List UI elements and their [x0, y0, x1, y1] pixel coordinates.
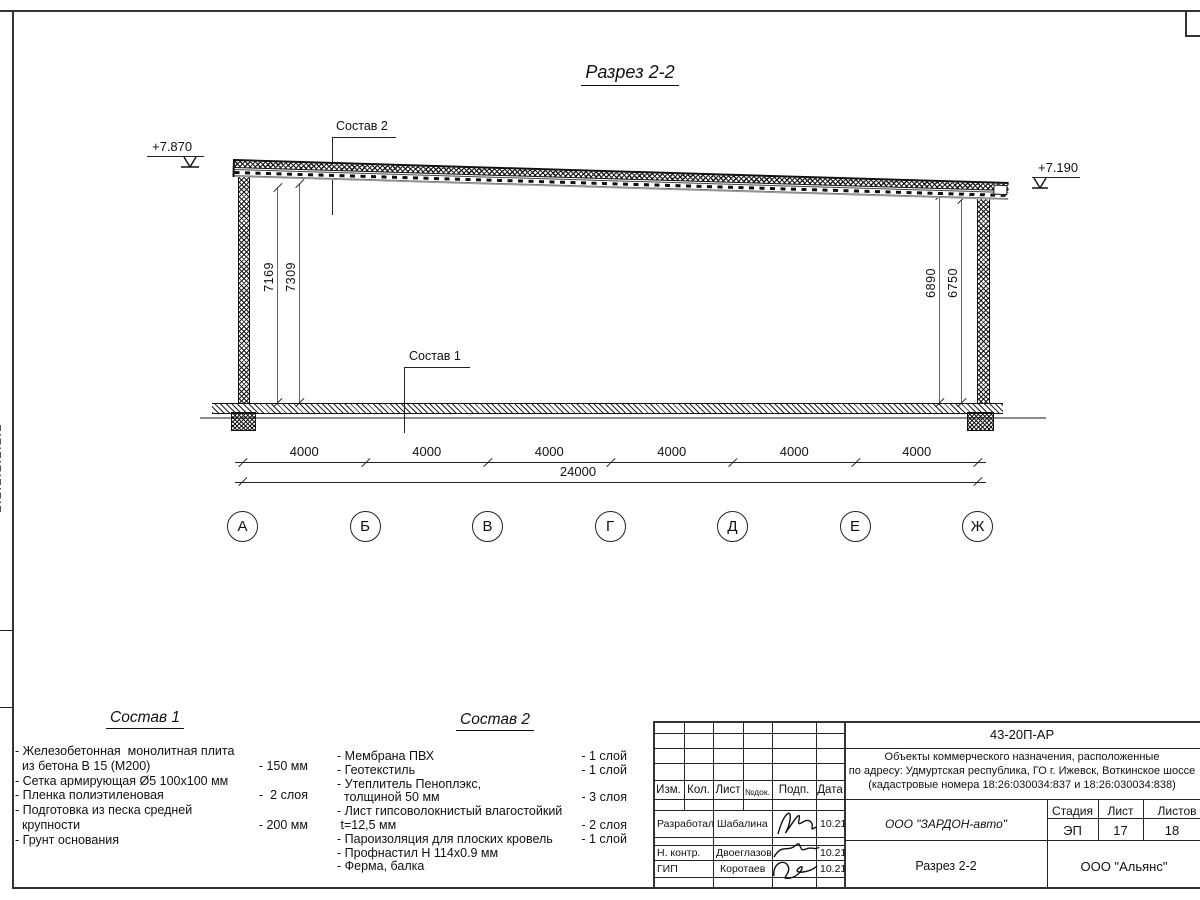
- spec-row-label: - Железобетонная монолитная плита: [15, 744, 234, 759]
- sign-date: 10.21: [820, 847, 846, 859]
- callout-sostav1-leader: [404, 367, 405, 433]
- spec-row: - Мембрана ПВХ - 1 слой: [337, 750, 627, 764]
- axis-line: [0, 425, 1, 513]
- axis-circle: Ж: [962, 511, 993, 542]
- axis-circle: Г: [595, 511, 626, 542]
- spec-row-value: - 2 слоя: [259, 788, 308, 803]
- spec-row: крупности - 200 мм: [15, 818, 308, 833]
- left-wall: [238, 170, 250, 404]
- dim-tick: [728, 458, 737, 467]
- callout-sostav2: Состав 2: [336, 119, 388, 133]
- sign-role: ГИП: [657, 863, 678, 875]
- footing-left: [231, 412, 256, 431]
- frame-top: [0, 10, 1200, 12]
- dim-tick: [238, 458, 247, 467]
- spec-row-value: - 200 мм: [259, 818, 308, 833]
- spec-row-label: - Геотекстиль: [337, 764, 415, 778]
- dim-value-7309: 7309: [284, 262, 298, 292]
- axis-circle: В: [472, 511, 503, 542]
- sign-name: Двоеглазов: [716, 847, 772, 859]
- tb-header-izm: Изм.: [653, 784, 684, 796]
- spec-row-label: - Профнастил Н 114х0.9 мм: [337, 847, 498, 861]
- callout-sostav1: Состав 1: [409, 349, 461, 363]
- page-title: Разрез 2-2: [555, 62, 705, 86]
- spec-row: - Сетка армирующая Ø5 100х100 мм: [15, 774, 308, 789]
- spec-row-label: - Грунт основания: [15, 833, 119, 848]
- frame-bottom: [12, 887, 1200, 889]
- spec-row-value: - 1 слой: [581, 833, 627, 847]
- axis-circle: А: [227, 511, 258, 542]
- spec-row-label: - Ферма, балка: [337, 860, 424, 874]
- dim-line-total: [235, 482, 986, 483]
- company-name: ООО "ЗАРДОН-авто": [846, 817, 1046, 831]
- spec-row-label: - Подготовка из песка средней: [15, 803, 192, 818]
- elevation-left-value: +7.870: [152, 139, 192, 154]
- spec1-heading: Состав 1: [60, 709, 230, 729]
- sign-date: 10.21: [820, 863, 846, 875]
- spec-row-value: - 150 мм: [259, 759, 308, 774]
- spec-row: - Пароизоляция для плоских кровель - 1 с…: [337, 833, 627, 847]
- spec-row-value: - 3 слоя: [582, 791, 627, 805]
- project-desc-line: по адресу: Удмуртская республика, ГО г. …: [844, 765, 1200, 777]
- org-name: ООО "Альянс": [1049, 859, 1199, 874]
- floor-slab: [212, 403, 1003, 414]
- drawing-sheet: Разрез 2-2 Состав 2 Состав 1 +7.870 +7.1…: [0, 0, 1200, 900]
- spec2-list: - Мембрана ПВХ - 1 слой - Геотекстиль - …: [337, 750, 627, 874]
- spec-row-label: - Сетка армирующая Ø5 100х100 мм: [15, 774, 228, 789]
- margin-tick: [0, 630, 12, 631]
- stage-label: Стадия: [1047, 804, 1098, 818]
- project-desc-line: Объекты коммерческого назначения, распол…: [844, 751, 1200, 763]
- spec-row-label: - Пароизоляция для плоских кровель: [337, 833, 553, 847]
- sheets-label: Листов: [1143, 804, 1200, 818]
- dim-value-24000: 24000: [538, 464, 618, 479]
- spec-row-label: - Пленка полиэтиленовая: [15, 788, 164, 803]
- spec-row: - Подготовка из песка средней: [15, 803, 308, 818]
- sheet-number: 17: [1098, 823, 1143, 838]
- spec-row: - Утеплитель Пеноплэкс,: [337, 778, 627, 792]
- footing-right: [967, 412, 994, 431]
- callout-sostav2-shelf: [332, 137, 396, 138]
- callout-sostav1-shelf: [404, 367, 470, 368]
- spec-row-label: t=12,5 мм: [337, 819, 396, 833]
- spec-row-label: - Мембрана ПВХ: [337, 750, 434, 764]
- tb-header-kol: Кол.: [684, 784, 713, 796]
- axis-circle: Е: [840, 511, 871, 542]
- dim-value-7169: 7169: [262, 262, 276, 292]
- spec-row: - Пленка полиэтиленовая - 2 слоя: [15, 788, 308, 803]
- project-desc-line: (кадастровые номера 18:26:030034:837 и 1…: [844, 779, 1200, 791]
- spec-row: - Профнастил Н 114х0.9 мм: [337, 847, 627, 861]
- elevation-right-value: +7.190: [1038, 160, 1078, 175]
- spec-row-label: толщиной 50 мм: [337, 791, 440, 805]
- tb-header-list: Лист: [713, 784, 743, 796]
- spec-row-label: - Лист гипсоволокнистый влагостойкий: [337, 805, 562, 819]
- signature-icon: [774, 806, 818, 840]
- elevation-arrow-icon: [178, 156, 202, 170]
- dim-tick: [483, 458, 492, 467]
- sign-date: 10.21: [820, 818, 846, 830]
- margin-tick: [0, 707, 12, 708]
- dim-tick: [973, 458, 982, 467]
- spec-row: - Грунт основания: [15, 833, 308, 848]
- roof-assembly: [232, 159, 1008, 200]
- elevation-arrow-icon: [1030, 177, 1054, 191]
- spec-row: - Железобетонная монолитная плита: [15, 744, 308, 759]
- stage-value: ЭП: [1047, 823, 1098, 838]
- sign-role: Н. контр.: [657, 847, 700, 859]
- tb-header-data: Дата: [816, 784, 844, 796]
- doc-number: 43-20П-АР: [844, 727, 1200, 742]
- axis-circle: Б: [350, 511, 381, 542]
- ground-line: [200, 417, 1046, 419]
- dim-line-vertical: [961, 200, 962, 403]
- spec-row-value: - 1 слой: [581, 764, 627, 778]
- dim-tick: [361, 458, 370, 467]
- spec2-heading: Состав 2: [410, 711, 580, 731]
- sheets-total: 18: [1143, 823, 1200, 838]
- sheet-label: Лист: [1098, 804, 1143, 818]
- spec-row-label: крупности: [15, 818, 80, 833]
- roof-end-cap: [993, 185, 1007, 195]
- spec-row: - Лист гипсоволокнистый влагостойкий: [337, 805, 627, 819]
- spec-row: толщиной 50 мм - 3 слоя: [337, 791, 627, 805]
- spec-row: - Геотекстиль - 1 слой: [337, 764, 627, 778]
- frame-corner-box: [1185, 10, 1200, 37]
- sign-name: Коротаев: [720, 863, 765, 875]
- spec1-list: - Железобетонная монолитная плита из бет…: [15, 744, 308, 848]
- dim-line-vertical: [299, 184, 300, 403]
- stamp-sheet-title: Разрез 2-2: [846, 859, 1046, 873]
- dim-line-vertical: [277, 188, 278, 403]
- sign-role: Разработал: [657, 818, 714, 830]
- frame-left: [12, 10, 14, 888]
- dim-tick: [851, 458, 860, 467]
- axis-circle: Д: [717, 511, 748, 542]
- spec-row-value: - 1 слой: [581, 750, 627, 764]
- spec-row: из бетона В 15 (М200) - 150 мм: [15, 759, 308, 774]
- tb-header-ndok: №док.: [743, 787, 772, 797]
- dim-value-6890: 6890: [924, 268, 938, 298]
- dim-line-vertical: [939, 196, 940, 403]
- spec-row: - Ферма, балка: [337, 860, 627, 874]
- sign-name: Шабалина: [717, 818, 768, 830]
- right-wall: [977, 190, 990, 404]
- spec-row-value: - 2 слоя: [582, 819, 627, 833]
- tb-header-podp: Подп.: [772, 784, 816, 796]
- signature-icon: [770, 856, 820, 880]
- axis-bubbles: АБВГДЕЖ: [227, 511, 993, 543]
- spec-row-label: - Утеплитель Пеноплэкс,: [337, 778, 481, 792]
- spec-row-label: из бетона В 15 (М200): [15, 759, 150, 774]
- dim-value-6750: 6750: [946, 268, 960, 298]
- spec-row: t=12,5 мм - 2 слоя: [337, 819, 627, 833]
